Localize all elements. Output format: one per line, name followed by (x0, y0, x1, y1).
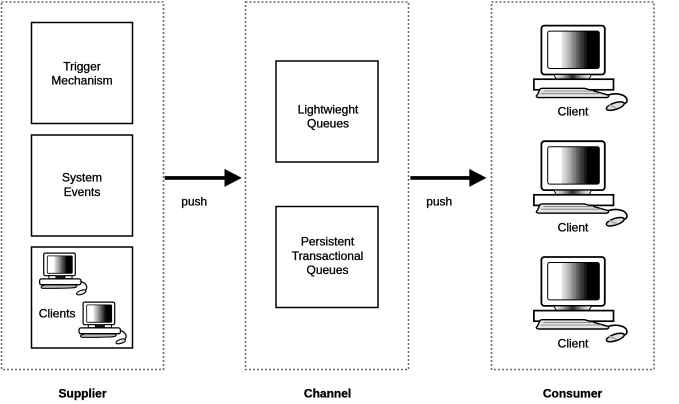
svg-text:Queues: Queues (307, 116, 349, 130)
svg-text:System: System (62, 171, 102, 185)
svg-text:Persistent: Persistent (301, 235, 355, 249)
svg-text:push: push (426, 195, 452, 209)
svg-text:Clients: Clients (39, 307, 76, 321)
svg-text:Events: Events (64, 185, 101, 199)
svg-text:Client: Client (558, 104, 589, 118)
svg-text:Lightwieght: Lightwieght (298, 102, 359, 116)
svg-text:Transactional: Transactional (292, 249, 364, 263)
svg-text:Client: Client (558, 336, 589, 350)
svg-text:Trigger: Trigger (63, 59, 101, 73)
svg-text:Consumer: Consumer (543, 387, 603, 401)
svg-text:Client: Client (558, 220, 589, 234)
svg-text:Queues: Queues (306, 263, 348, 277)
svg-text:Mechanism: Mechanism (51, 74, 112, 88)
svg-text:Supplier: Supplier (58, 387, 106, 401)
svg-text:push: push (181, 195, 207, 209)
svg-text:Channel: Channel (304, 387, 351, 401)
